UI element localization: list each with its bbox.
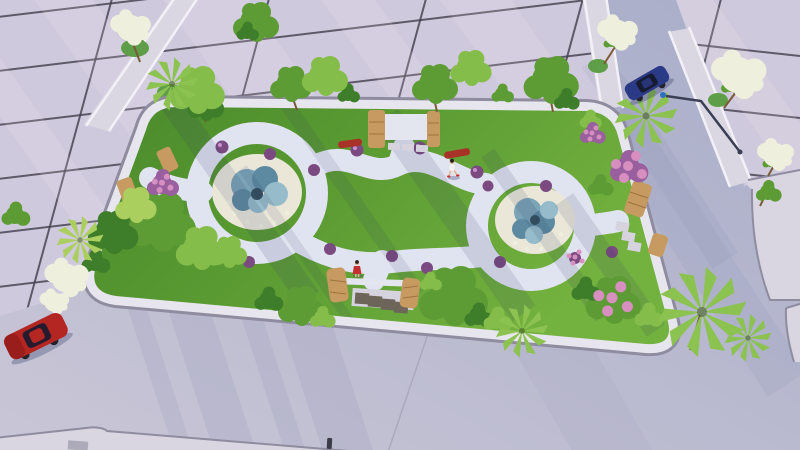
entrance-top-pillar-right — [427, 111, 440, 147]
bollard — [327, 438, 333, 449]
aerial-park-render — [0, 0, 800, 450]
render-stage: Aerial view of a landscaped pocket park … — [0, 0, 800, 450]
lamp-head — [660, 92, 666, 98]
entrance-top-wall — [385, 114, 427, 140]
entrance-top-pillar-left — [368, 110, 385, 148]
entrance-top — [368, 110, 440, 152]
